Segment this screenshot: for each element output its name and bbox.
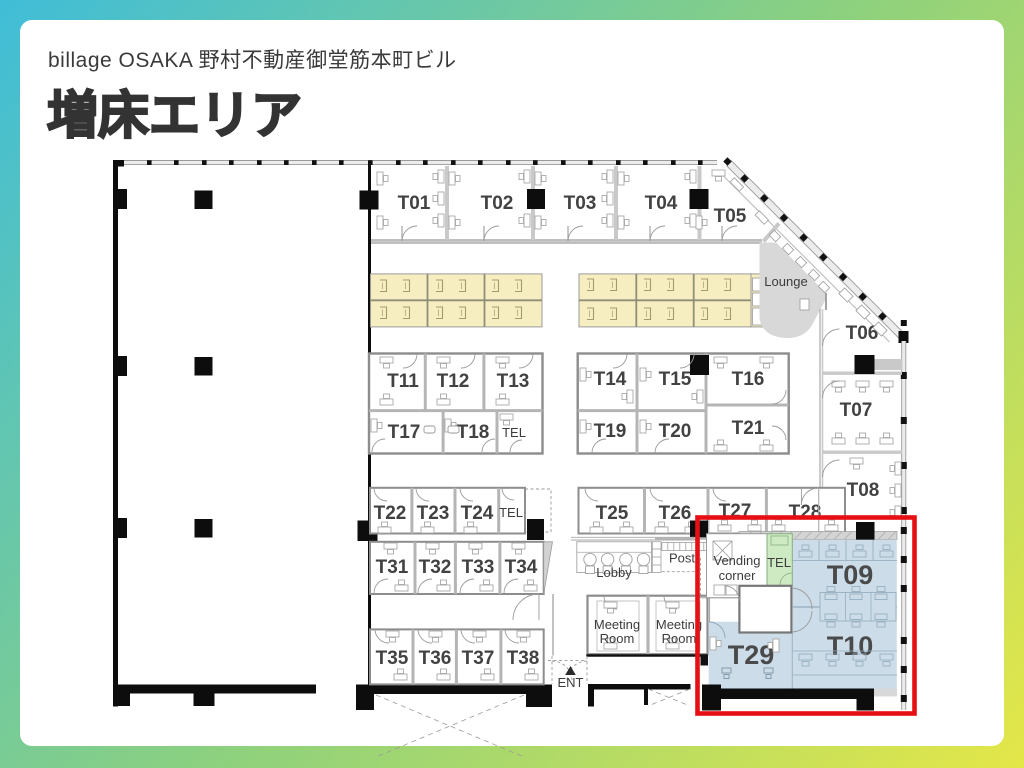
svg-text:T07: T07 [840,400,873,421]
svg-text:T11: T11 [387,371,419,392]
svg-text:T35: T35 [376,648,409,669]
svg-text:T24: T24 [461,503,494,524]
svg-text:T14: T14 [594,369,627,390]
svg-text:T26: T26 [659,503,692,524]
svg-text:T02: T02 [481,193,514,214]
svg-text:T23: T23 [417,503,450,524]
svg-text:Post: Post [669,551,695,566]
svg-text:T22: T22 [374,503,407,524]
svg-text:T38: T38 [507,648,540,669]
svg-text:T16: T16 [732,369,765,390]
svg-text:Meeting: Meeting [594,617,640,632]
svg-text:T33: T33 [462,557,495,578]
svg-text:T20: T20 [659,421,692,442]
svg-text:T19: T19 [594,421,627,442]
svg-text:T17: T17 [388,422,421,443]
svg-text:T32: T32 [419,557,452,578]
svg-text:TEL: TEL [502,425,526,440]
svg-text:T08: T08 [847,480,880,501]
svg-text:T25: T25 [596,503,629,524]
svg-text:T34: T34 [505,557,538,578]
svg-text:T37: T37 [462,648,495,669]
svg-text:T04: T04 [645,193,678,214]
svg-text:T28: T28 [789,502,822,523]
svg-text:T13: T13 [497,371,530,392]
svg-text:T36: T36 [419,648,452,669]
svg-text:corner: corner [719,568,757,583]
svg-text:T06: T06 [846,323,879,344]
svg-text:T09: T09 [827,560,874,590]
svg-text:Lounge: Lounge [764,274,807,289]
svg-text:T31: T31 [376,557,409,578]
svg-text:Room: Room [600,631,635,646]
svg-text:Meeting: Meeting [656,617,702,632]
svg-text:T03: T03 [564,193,597,214]
svg-text:T05: T05 [714,206,747,227]
svg-text:T18: T18 [457,422,490,443]
svg-text:TEL: TEL [767,555,791,570]
svg-text:T12: T12 [437,371,470,392]
svg-text:T29: T29 [728,640,775,670]
svg-text:T15: T15 [659,369,692,390]
svg-text:TEL: TEL [499,505,523,520]
svg-text:Vending: Vending [714,553,761,568]
svg-text:Room: Room [662,631,697,646]
svg-text:T21: T21 [732,418,765,439]
svg-text:Lobby: Lobby [596,565,632,580]
svg-text:T01: T01 [398,193,431,214]
svg-text:ENT: ENT [558,675,584,690]
